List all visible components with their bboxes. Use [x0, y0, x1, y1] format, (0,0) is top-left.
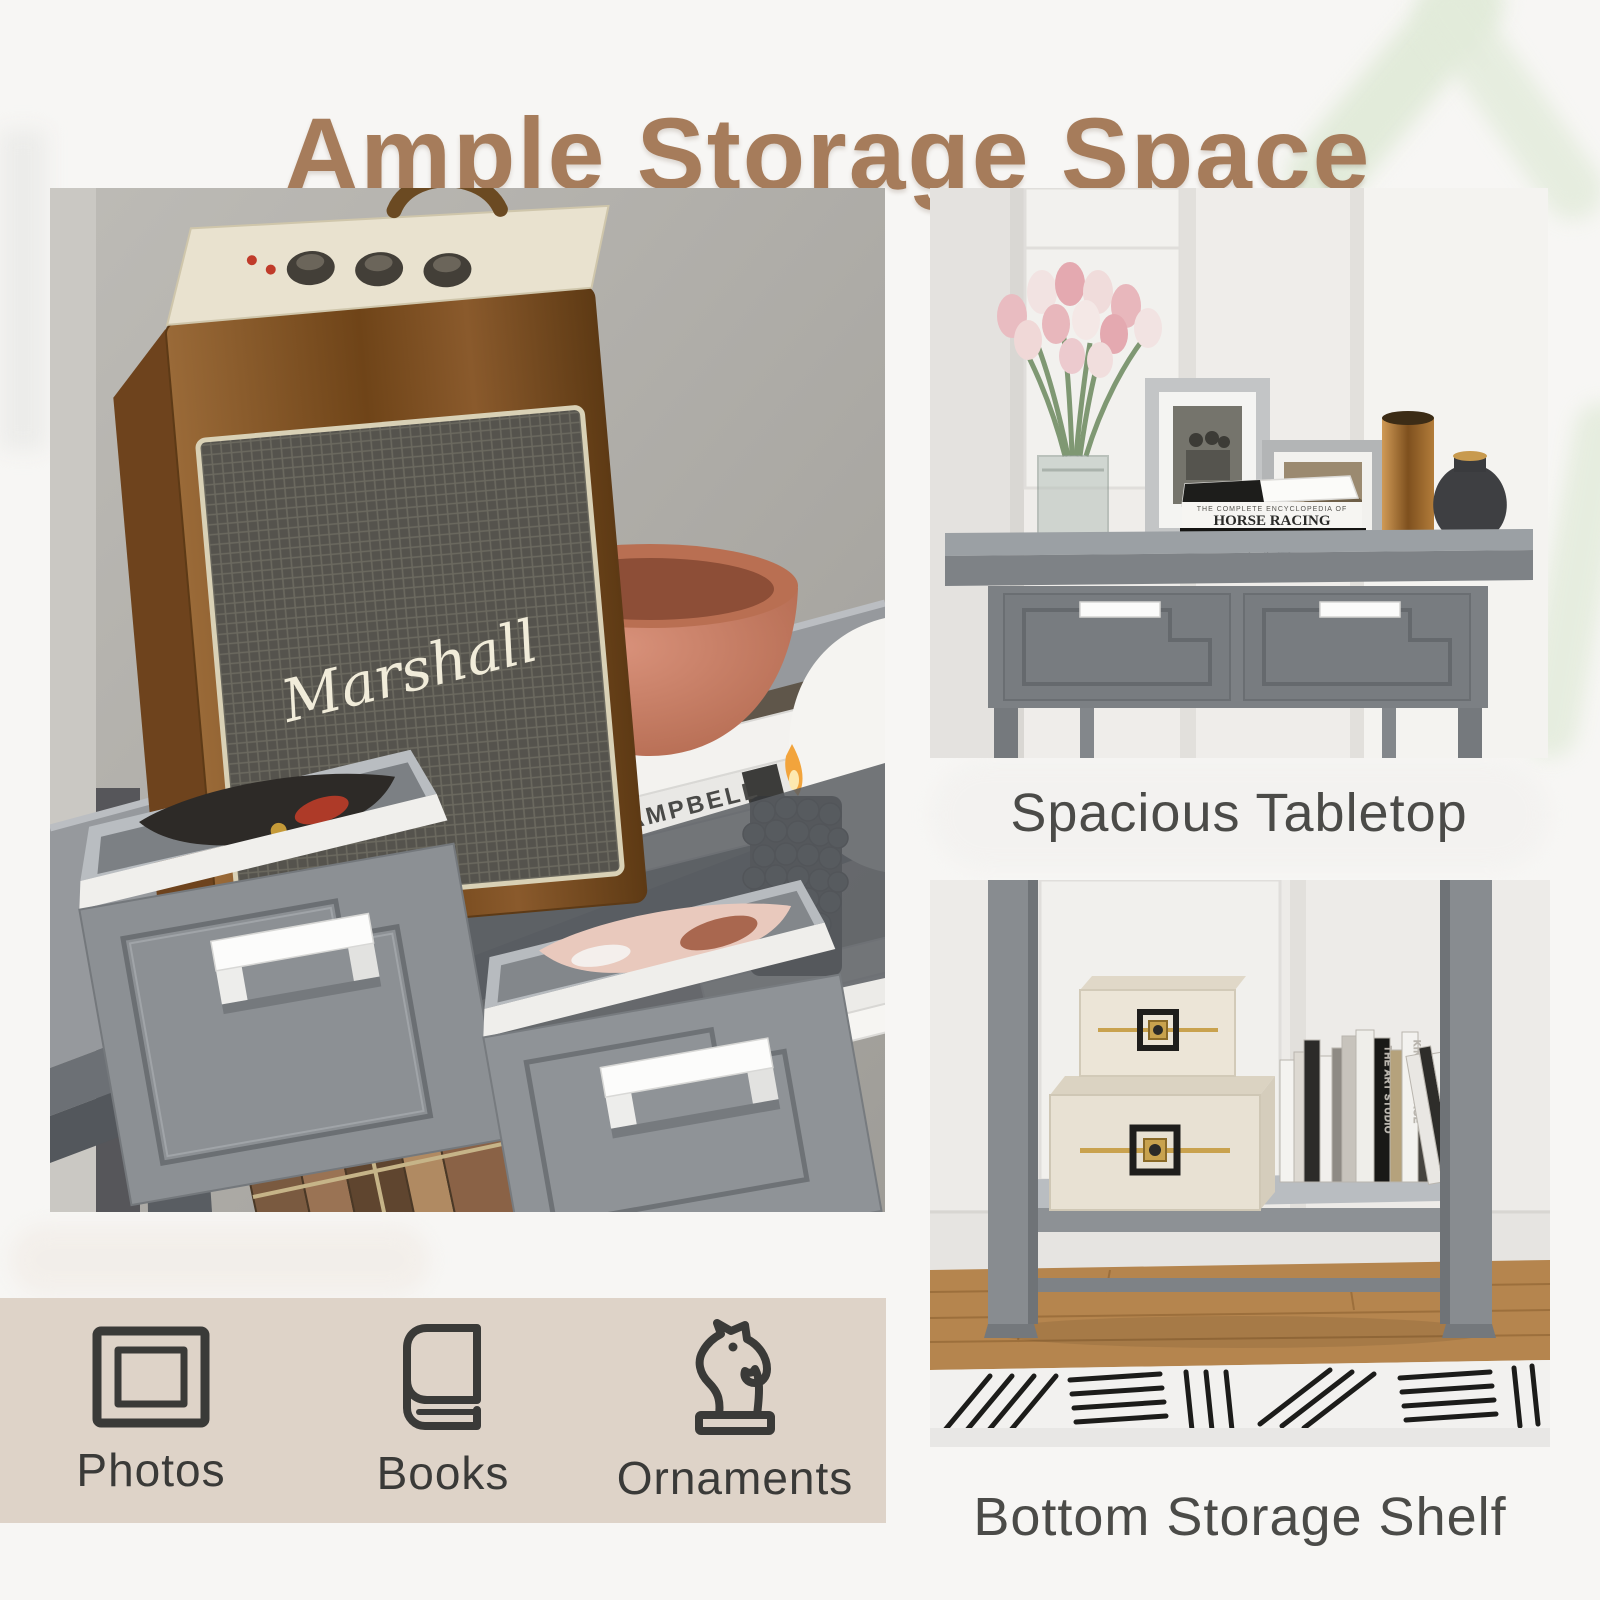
- feature-photos: Photos: [36, 1325, 266, 1497]
- feature-label: Photos: [76, 1443, 225, 1497]
- tabletop-scene: THE COMPLETE ENCYCLOPEDIA OF HORSE RACIN…: [930, 188, 1548, 758]
- book-icon: [393, 1322, 493, 1432]
- book-title-horse-racing: HORSE RACING: [1213, 513, 1330, 529]
- drawer-front-right: [1244, 594, 1470, 700]
- table-leg: [1458, 708, 1482, 758]
- shelf-scene: THE ART STUDIO KINGDOMIMAGE: [930, 880, 1550, 1447]
- product-feature-collage: Ample Storage Space: [0, 0, 1600, 1600]
- bottom-shelf-photo: THE ART STUDIO KINGDOMIMAGE: [930, 880, 1550, 1447]
- book-subtitle-text: THE COMPLETE ENCYCLOPEDIA OF: [1197, 506, 1348, 513]
- table-leg: [994, 708, 1018, 758]
- tabletop-photo: THE COMPLETE ENCYCLOPEDIA OF HORSE RACIN…: [930, 188, 1548, 758]
- main-photo-scene: ABBY CAMPBELL: [50, 188, 885, 1212]
- caption-spacious-tabletop: Spacious Tabletop: [930, 782, 1548, 844]
- background-furniture: [10, 1225, 430, 1295]
- main-photo-console-drawers-open: ABBY CAMPBELL: [50, 188, 885, 1212]
- drawer-handle: [1320, 602, 1400, 617]
- photo-frame-icon: [91, 1325, 211, 1429]
- feature-books: Books: [328, 1322, 558, 1500]
- copper-vase: [1382, 411, 1434, 544]
- drawer-front-left: [1004, 594, 1230, 700]
- drawer-handle: [1080, 602, 1160, 617]
- feature-label: Books: [377, 1446, 510, 1500]
- caption-bottom-storage-shelf: Bottom Storage Shelf: [930, 1486, 1550, 1548]
- chess-knight-icon: [675, 1317, 795, 1437]
- feature-strip: Photos Books Ornaments: [0, 1298, 886, 1523]
- striped-rug: [930, 1360, 1550, 1447]
- feature-ornaments: Ornaments: [620, 1317, 850, 1505]
- feature-label: Ornaments: [617, 1451, 854, 1505]
